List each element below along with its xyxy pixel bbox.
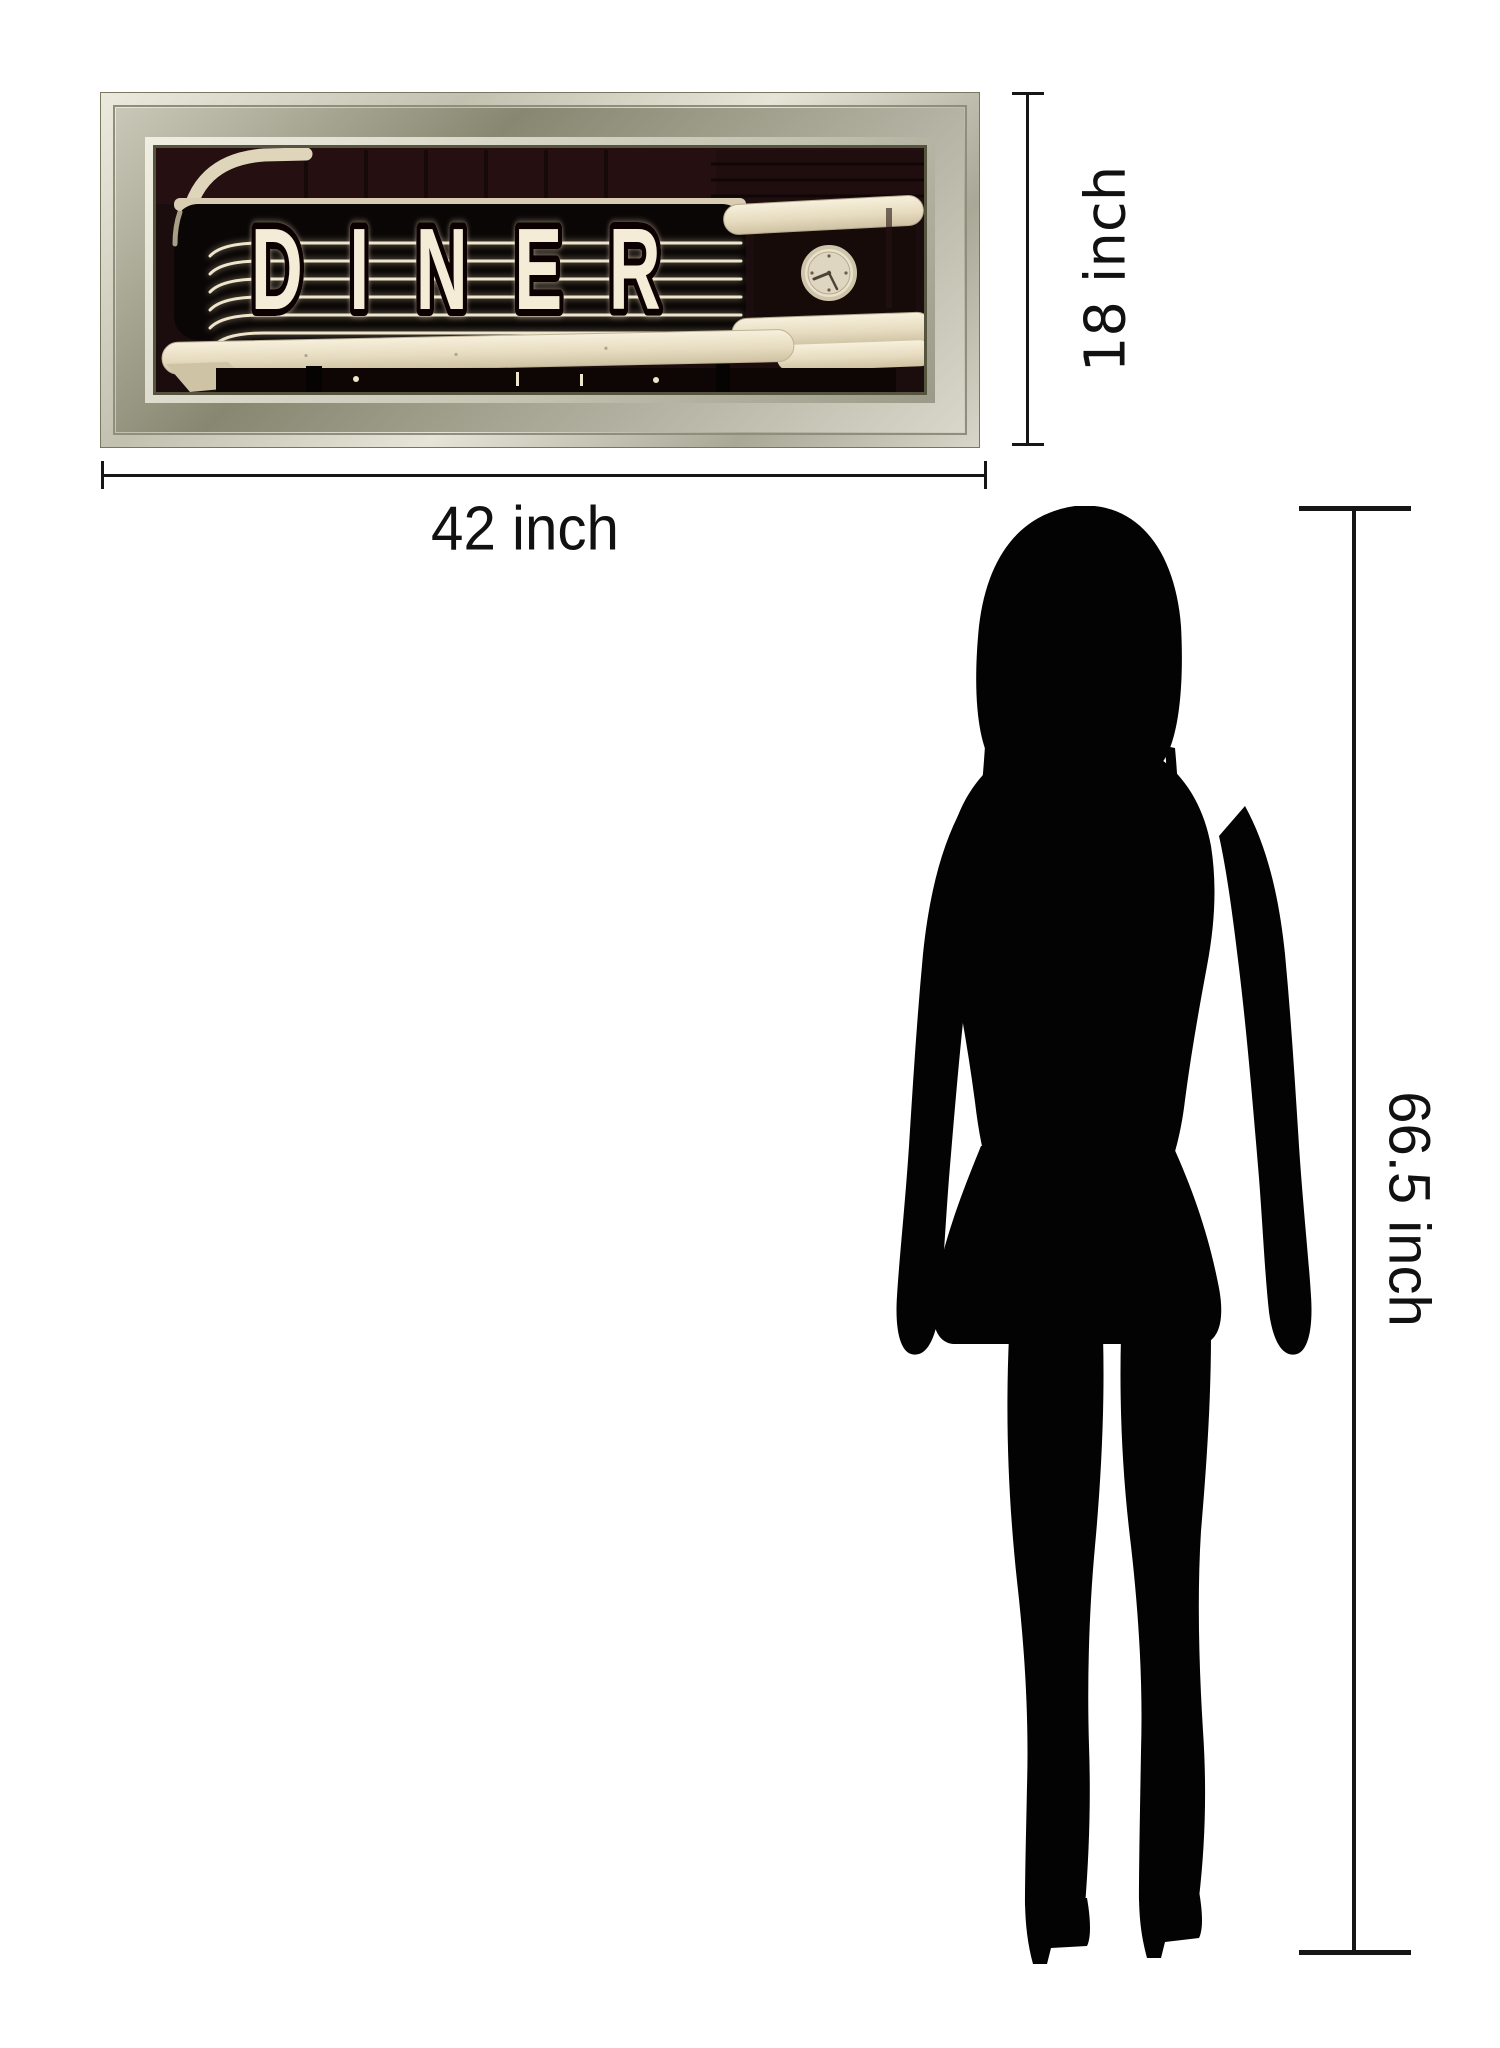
width-dimension-label: 42 inch [431, 494, 619, 565]
woman-silhouette-art [888, 506, 1320, 1970]
framed-artwork: DINER [100, 92, 980, 448]
product-size-diagram: DINER [0, 0, 1500, 2048]
person-dimension-line [1352, 509, 1356, 1952]
woman-silhouette-shapes [897, 506, 1312, 1964]
clock-face-icon [803, 247, 855, 299]
diner-photo-art: DINER [156, 148, 924, 392]
width-dimension-line [101, 474, 987, 477]
width-dimension-cap-right [984, 461, 987, 489]
person-dimension-label: 66.5 inch [1376, 1091, 1443, 1326]
height-dimension-cap-bottom [1012, 443, 1044, 446]
person-dimension-cap-bottom [1299, 1950, 1411, 1955]
height-dimension-line [1026, 93, 1029, 445]
diner-photo: DINER [156, 148, 924, 392]
height-dimension-label: 18 inch [1074, 166, 1139, 372]
glass-streak [886, 208, 892, 308]
woman-silhouette [888, 506, 1320, 1970]
